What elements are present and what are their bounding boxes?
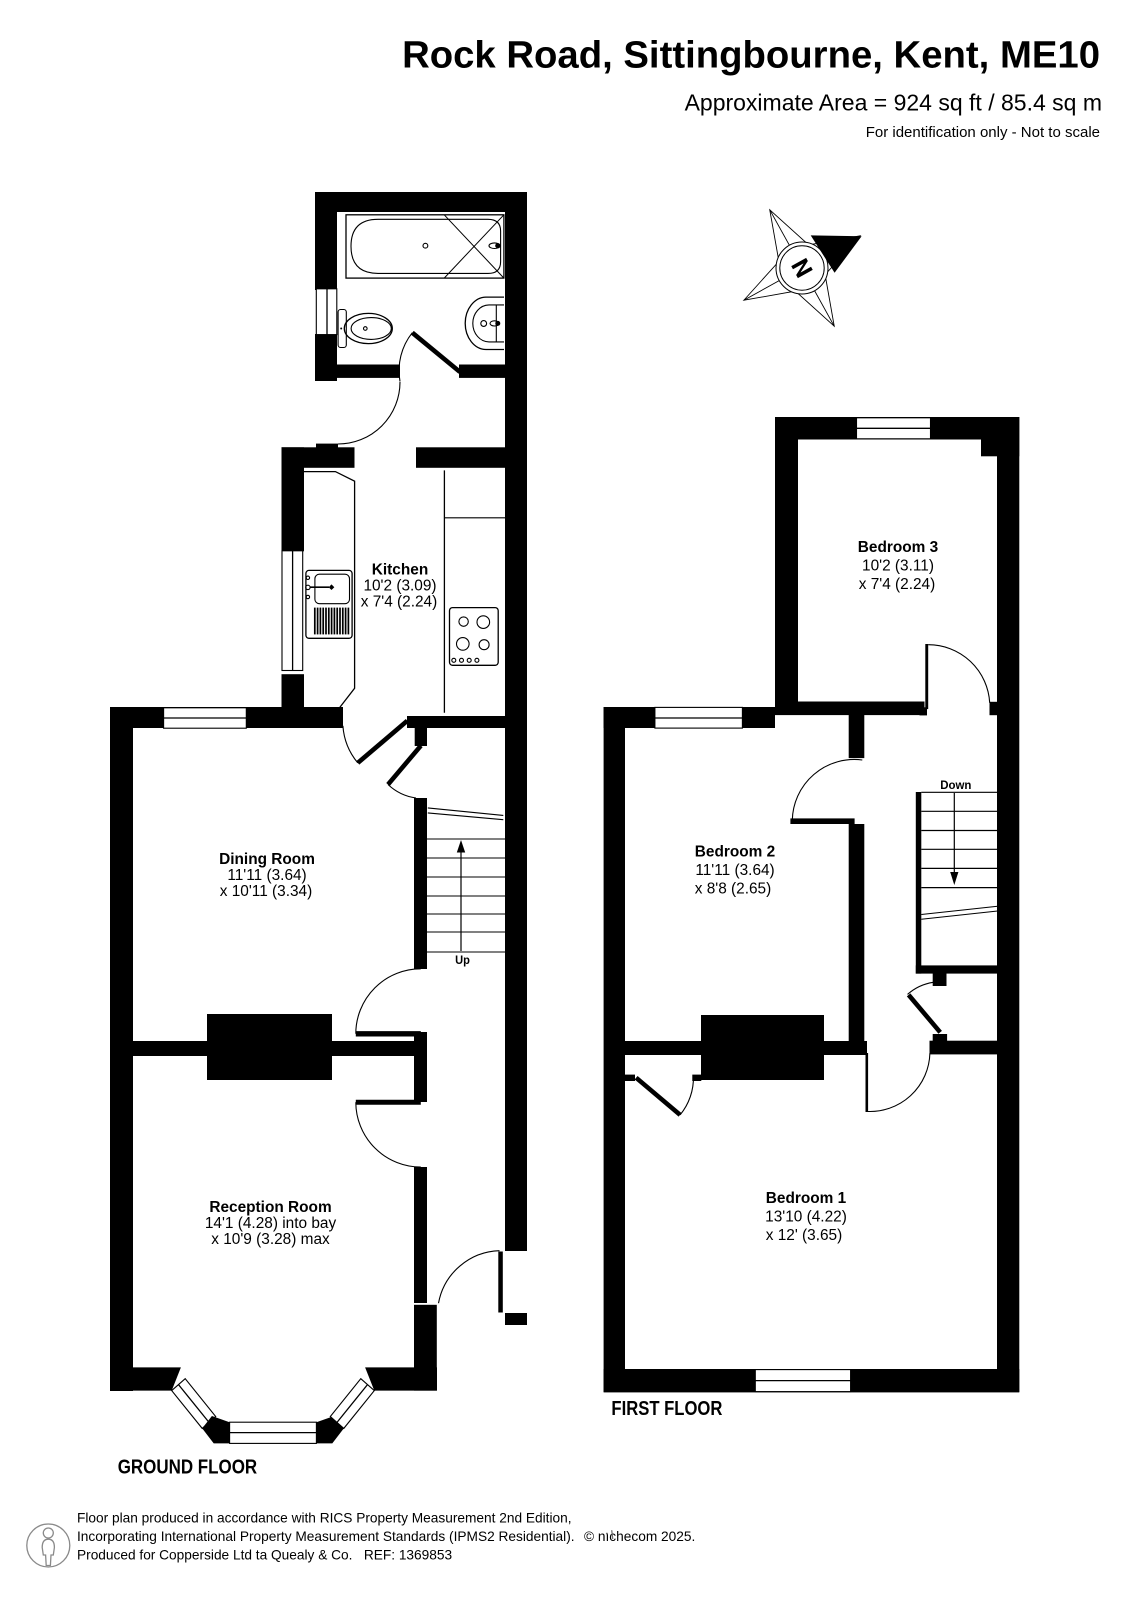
svg-text:Bedroom 3: Bedroom 3 bbox=[858, 539, 938, 556]
svg-text:For identification only - Not: For identification only - Not to scale bbox=[866, 124, 1100, 141]
svg-text:13'10 (4.22): 13'10 (4.22) bbox=[765, 1209, 847, 1226]
svg-text:Up: Up bbox=[455, 955, 470, 967]
svg-text:10'2 (3.09): 10'2 (3.09) bbox=[363, 578, 436, 595]
svg-text:11'11 (3.64): 11'11 (3.64) bbox=[695, 862, 774, 879]
svg-text:x 7'4 (2.24): x 7'4 (2.24) bbox=[361, 594, 438, 611]
svg-text:Incorporating International Pr: Incorporating International Property Mea… bbox=[77, 1529, 575, 1544]
svg-text:Approximate Area = 924 sq ft /: Approximate Area = 924 sq ft / 85.4 sq m bbox=[685, 90, 1102, 116]
svg-text:Reception Room: Reception Room bbox=[209, 1199, 331, 1216]
svg-text:Produced for Copperside Ltd ta: Produced for Copperside Ltd ta Quealy & … bbox=[77, 1548, 452, 1563]
svg-text:Kitchen: Kitchen bbox=[372, 562, 428, 579]
svg-text:FIRST FLOOR: FIRST FLOOR bbox=[611, 1397, 722, 1420]
svg-text:10'2 (3.11): 10'2 (3.11) bbox=[862, 558, 934, 575]
svg-text:Floor plan produced in accorda: Floor plan produced in accordance with R… bbox=[77, 1511, 572, 1526]
svg-text:x 12' (3.65): x 12' (3.65) bbox=[766, 1227, 843, 1244]
svg-text:11'11 (3.64): 11'11 (3.64) bbox=[227, 867, 306, 884]
svg-text:GROUND FLOOR: GROUND FLOOR bbox=[118, 1456, 258, 1479]
svg-text:Rock Road, Sittingbourne, Kent: Rock Road, Sittingbourne, Kent, ME10 bbox=[402, 34, 1100, 77]
svg-text:© nıchecom 2025.: © nıchecom 2025. bbox=[584, 1529, 695, 1544]
svg-text:x 7'4 (2.24): x 7'4 (2.24) bbox=[859, 576, 936, 593]
svg-text:Bedroom 2: Bedroom 2 bbox=[695, 844, 775, 861]
svg-text:x 10'9 (3.28) max: x 10'9 (3.28) max bbox=[211, 1231, 330, 1248]
svg-text:Down: Down bbox=[940, 778, 971, 792]
svg-text:x 10'11 (3.34): x 10'11 (3.34) bbox=[220, 883, 313, 900]
svg-text:14'1 (4.28) into bay: 14'1 (4.28) into bay bbox=[205, 1215, 337, 1232]
svg-text:Dining Room: Dining Room bbox=[219, 851, 315, 868]
svg-text:Bedroom 1: Bedroom 1 bbox=[766, 1190, 847, 1207]
svg-text:x 8'8 (2.65): x 8'8 (2.65) bbox=[695, 881, 772, 898]
